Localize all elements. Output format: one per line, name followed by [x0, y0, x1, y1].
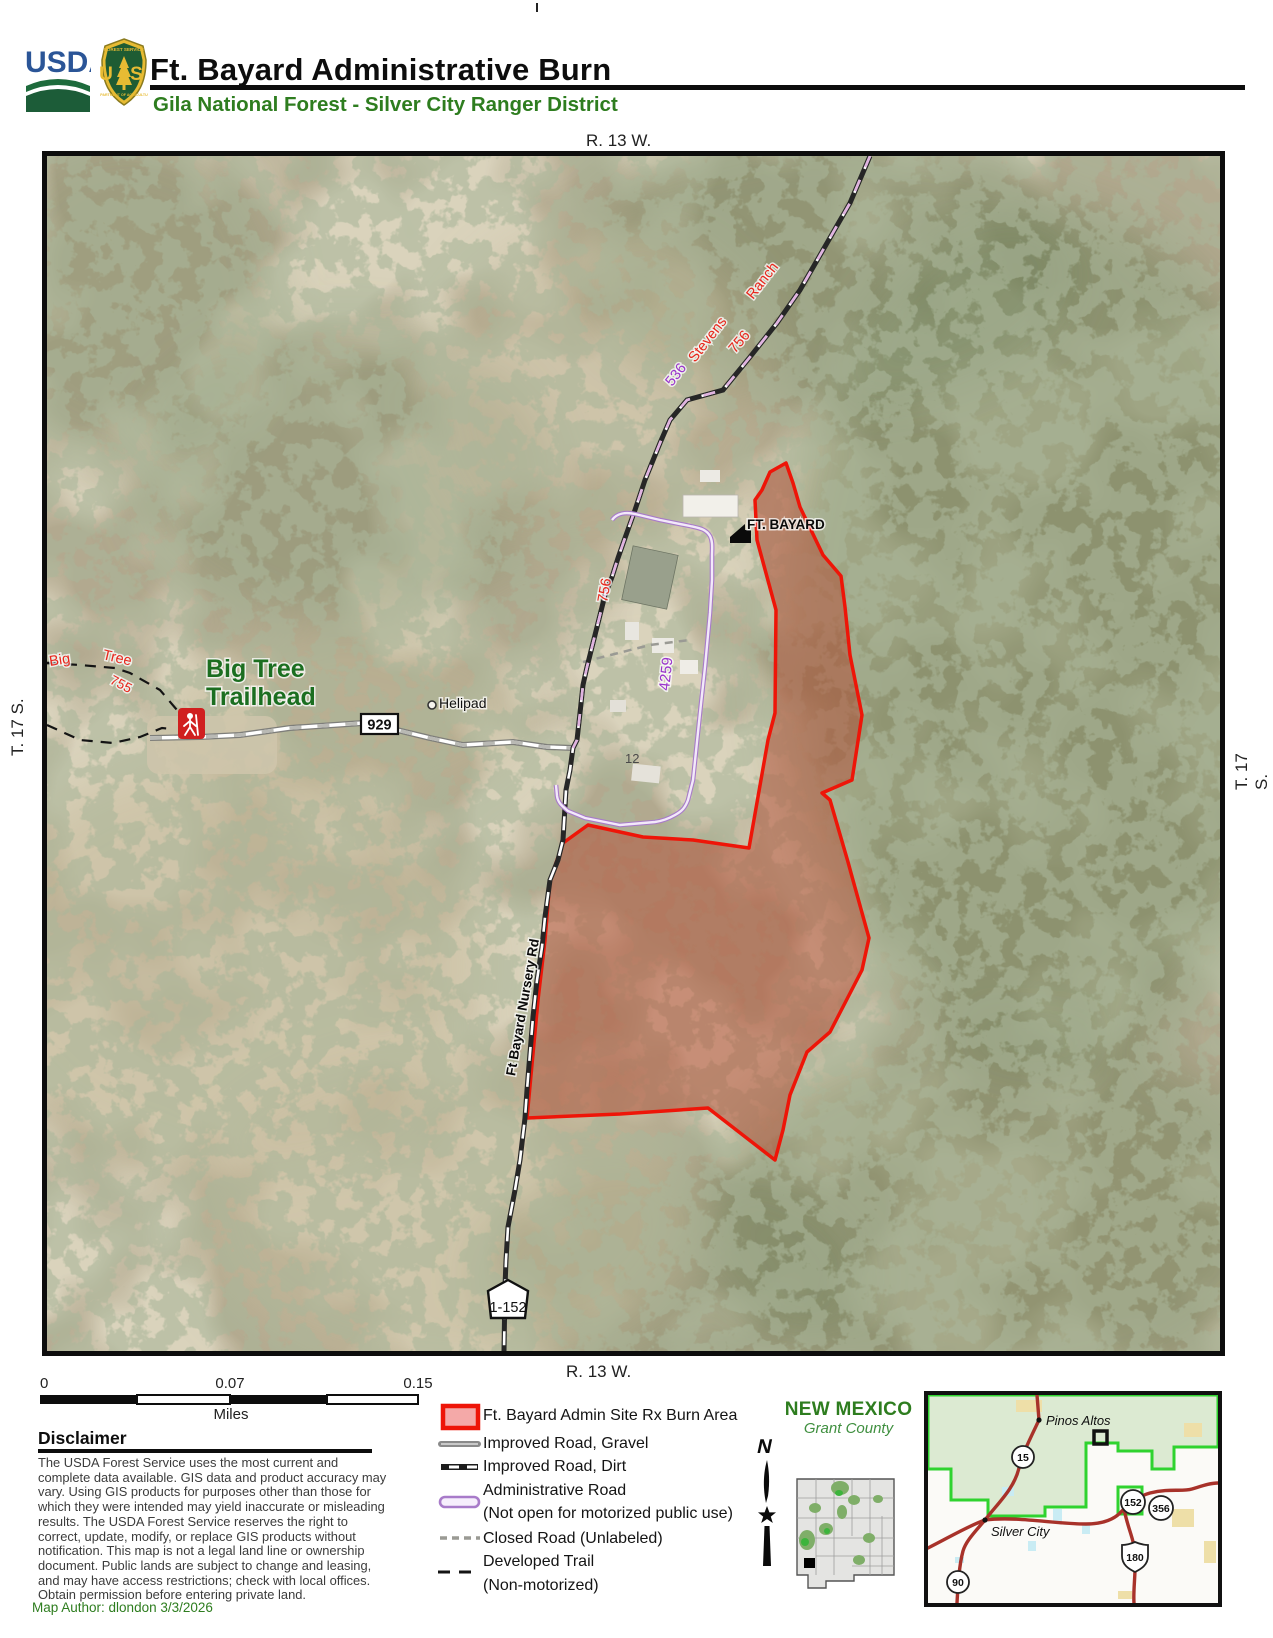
legend-burn-label: Ft. Bayard Admin Site Rx Burn Area: [483, 1407, 737, 1425]
north-arrow-tail-icon: [763, 1526, 771, 1566]
route-929-label: 929: [367, 718, 391, 734]
shield-top-text: FOREST SERVICE: [104, 47, 144, 52]
map-author: Map Author: dlondon 3/3/2026: [32, 1600, 213, 1615]
pinos-altos-label: Pinos Altos: [1046, 1413, 1111, 1428]
township-label-right: T. 17 S.: [1232, 749, 1272, 790]
usda-logotype: USDA: [25, 46, 91, 79]
legend-closed-label: Closed Road (Unlabeled): [483, 1530, 663, 1548]
page-title: Ft. Bayard Administrative Burn: [150, 52, 611, 88]
building-12-label: 12: [625, 751, 639, 766]
shield-bottom-text: DEPARTMENT OF AGRICULTURE: [100, 93, 148, 97]
legend-dirt-label: Improved Road, Dirt: [483, 1458, 626, 1476]
usda-field-icon: [26, 89, 90, 112]
disclaimer-underline: [38, 1449, 372, 1453]
trailhead-label-line2: Trailhead: [206, 683, 316, 711]
ft-bayard-label: FT. BAYARD: [747, 517, 825, 532]
legend-admin-label: Administrative Road: [483, 1482, 626, 1500]
trail-label-big: Big: [48, 651, 71, 670]
new-mexico-state-map: [794, 1476, 898, 1594]
trailhead-parking-lot: [147, 716, 277, 774]
disclaimer-heading: Disclaimer: [38, 1428, 127, 1449]
legend-admin-note: (Not open for motorized public use): [483, 1505, 733, 1523]
map-svg: 929 1-152 FT. BAYARD Helipad Big Tree Tr…: [47, 156, 1220, 1351]
county-name: Grant County: [776, 1420, 921, 1437]
shield-90: 90: [952, 1577, 964, 1589]
pinos-altos-dot: [1036, 1417, 1041, 1422]
page-subtitle: Gila National Forest - Silver City Range…: [153, 93, 618, 117]
legend-admin-swatch: [440, 1497, 479, 1507]
helipad-label: Helipad: [439, 695, 486, 711]
grant-county-marker: [804, 1558, 815, 1568]
registration-tick: [536, 3, 538, 12]
legend-swatches: [436, 1400, 486, 1595]
trailhead-hiker-icon: [178, 708, 205, 739]
legend-gravel-label: Improved Road, Gravel: [483, 1435, 648, 1453]
scale-units-label: Miles: [196, 1406, 266, 1423]
map-canvas: 929 1-152 FT. BAYARD Helipad Big Tree Tr…: [42, 151, 1225, 1356]
range-label-top: R. 13 W.: [586, 131, 651, 151]
scale-tick-007: 0.07: [215, 1375, 244, 1392]
legend-trail-label: Developed Trail: [483, 1553, 594, 1571]
north-arrow-blade-icon: [764, 1460, 769, 1503]
shield-152: 152: [1124, 1497, 1142, 1509]
legend-trail-note: (Non-motorized): [483, 1577, 599, 1595]
scale-tick-015: 0.15: [403, 1375, 432, 1392]
grant-county-inset: Pinos Altos Silver City 15 152 356 90 18…: [924, 1391, 1222, 1607]
state-name: NEW MEXICO: [776, 1399, 921, 1421]
trailhead-label-line1: Big Tree: [206, 655, 305, 683]
shield-180: 180: [1126, 1552, 1144, 1564]
north-label: N: [755, 1436, 774, 1458]
forest-service-shield-icon: FOREST SERVICE U S DEPARTMENT OF AGRICUL…: [100, 38, 148, 106]
shield-15: 15: [1017, 1452, 1029, 1464]
range-label-bottom: R. 13 W.: [566, 1362, 631, 1382]
map-document: USDA FOREST SERVICE U S DEPARTMENT OF AG…: [0, 0, 1273, 1638]
township-label-left: T. 17 S.: [8, 698, 28, 756]
scale-tick-0: 0: [40, 1375, 48, 1392]
route-1-152-label: 1-152: [489, 1300, 526, 1316]
shield-356: 356: [1152, 1503, 1170, 1515]
title-underline: [150, 85, 1245, 90]
north-arrow: N: [752, 1436, 782, 1568]
route-4259-label: 4259: [656, 656, 676, 691]
usda-logo: USDA: [25, 46, 91, 112]
helipad-marker: [428, 701, 436, 709]
legend-burn-swatch: [443, 1406, 478, 1428]
north-star-icon: [758, 1506, 776, 1523]
route-929-shield: 929: [361, 714, 398, 734]
silver-city-label: Silver City: [991, 1524, 1051, 1539]
silver-city-dot: [982, 1517, 987, 1522]
disclaimer-body: The USDA Forest Service uses the most cu…: [38, 1456, 392, 1603]
